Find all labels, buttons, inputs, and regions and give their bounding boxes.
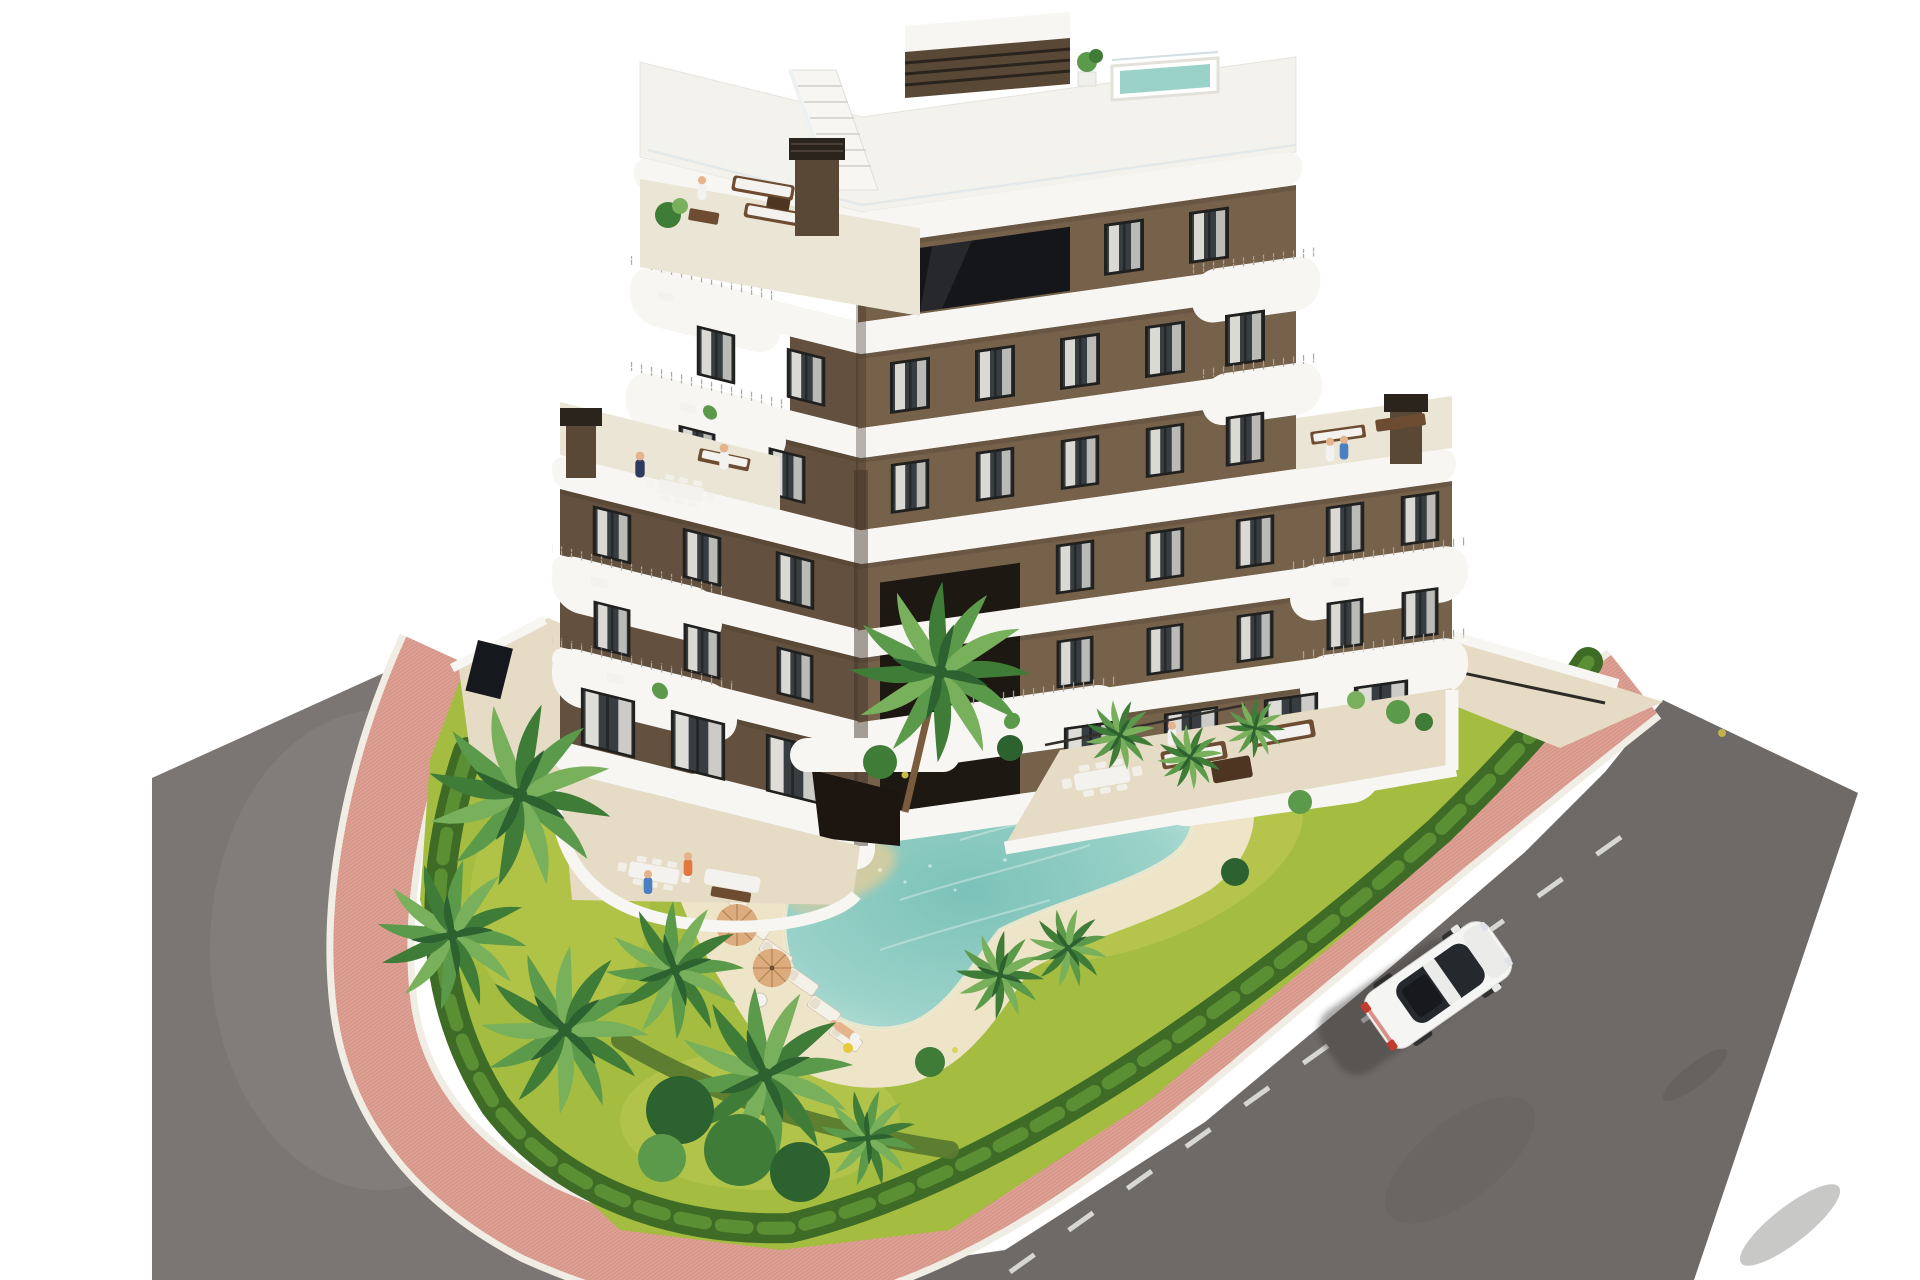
person-orange-shorts [684,852,693,876]
render-canvas: Aerial 3D architectural rendering of a m… [0,0,1920,1280]
rooftop-plunge-pool [1112,52,1218,100]
person-penthouse [698,176,707,200]
terrace-chimney [560,408,602,478]
apartment-building [552,12,1468,927]
person-navy-dress [635,452,644,478]
person-white-shirt [719,444,728,470]
parasol [753,949,792,988]
aerial-render: Aerial 3D architectural rendering of a m… [0,0,1920,1280]
person-white-top [1326,438,1335,462]
stair-bulkhead [905,12,1070,98]
penthouse-chimney [789,138,845,236]
road-skid-mark [1730,1173,1850,1278]
roof-plant [1077,49,1103,86]
person-blue-shirt [1340,436,1349,460]
yellow-towel [843,1043,853,1053]
road-drain [1718,729,1726,737]
person-blue [644,870,653,894]
tower-right-facade [852,147,1322,531]
